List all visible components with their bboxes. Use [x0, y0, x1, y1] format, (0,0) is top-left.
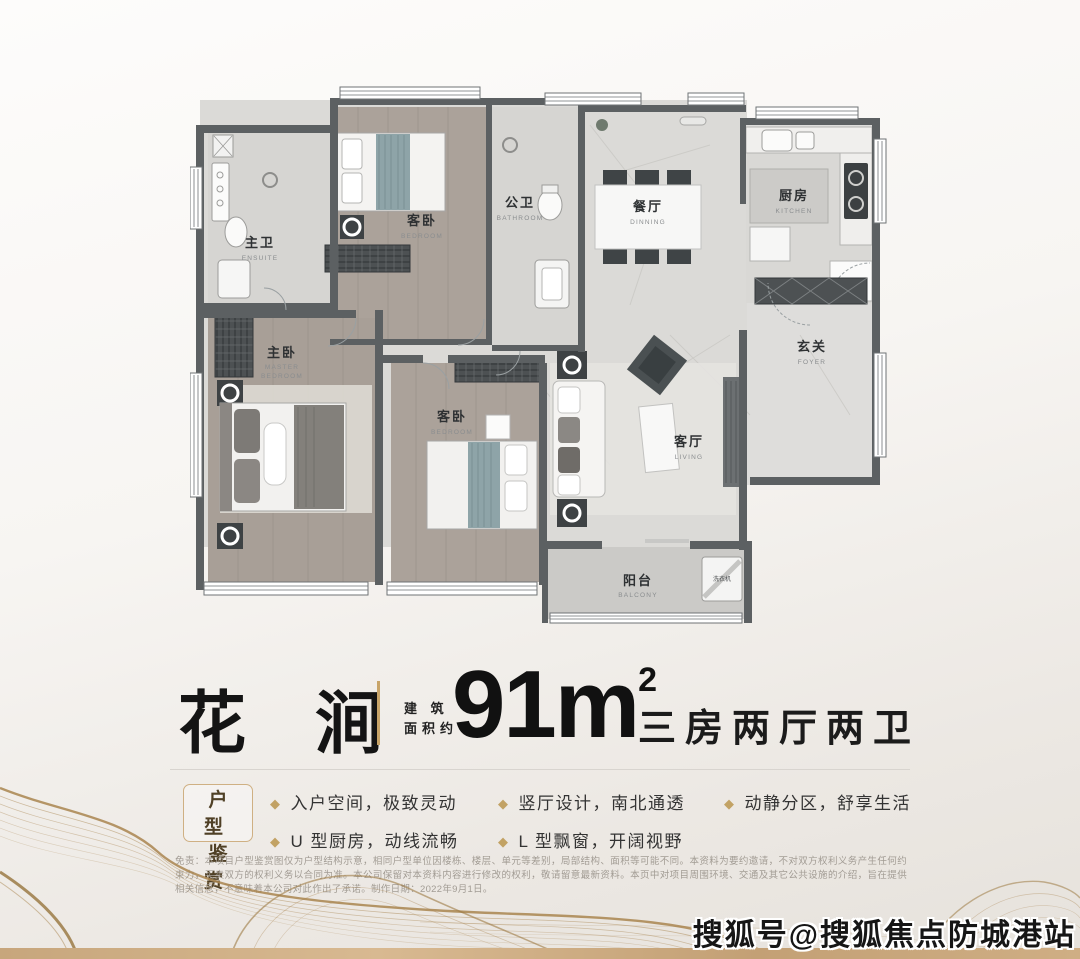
svg-text:ENSUITE: ENSUITE	[242, 255, 279, 262]
svg-text:客卧: 客卧	[407, 213, 437, 228]
foyer-cabinet	[755, 278, 867, 304]
svg-text:FOYER: FOYER	[798, 359, 826, 366]
room-label-bedroom-top: 客卧 BEDROOM	[401, 213, 443, 240]
area-prefix-line2: 面积约	[404, 719, 458, 739]
area-prefix-line1: 建 筑	[404, 699, 458, 719]
svg-text:阳台: 阳台	[623, 573, 653, 588]
svg-text:BALCONY: BALCONY	[618, 592, 657, 599]
svg-text:DINNING: DINNING	[630, 219, 666, 226]
svg-text:主卫: 主卫	[245, 235, 275, 250]
room-label-foyer: 玄关 FOYER	[797, 339, 827, 366]
area-superscript: 2	[638, 661, 657, 699]
svg-text:BEDROOM: BEDROOM	[401, 233, 443, 240]
area-value: 91m2	[452, 650, 657, 760]
room-label-balcony: 阳台 BALCONY	[618, 573, 657, 599]
gold-divider	[377, 681, 380, 745]
svg-text:餐厅: 餐厅	[632, 199, 663, 214]
room-label-ensuite: 主卫 ENSUITE	[242, 235, 279, 262]
room-label-bedroom-bottom: 客卧 BEDROOM	[431, 409, 473, 436]
svg-text:BATHROOM: BATHROOM	[497, 215, 544, 222]
layout-description: 三房两厅两卫	[638, 697, 920, 752]
area-number: 91m	[452, 651, 638, 758]
room-label-kitchen: 厨房 KITCHEN	[776, 188, 813, 215]
svg-text:玄关: 玄关	[797, 339, 827, 354]
svg-text:BEDROOM: BEDROOM	[261, 373, 303, 380]
floor-plan: 主卫 ENSUITE 客卧 BEDROOM 公卫 BATHROOM 餐厅 DIN…	[190, 85, 890, 645]
svg-text:BEDROOM: BEDROOM	[431, 429, 473, 436]
svg-text:LIVING: LIVING	[675, 454, 704, 461]
svg-text:厨房: 厨房	[779, 188, 809, 203]
watermark: 搜狐号@搜狐焦点防城港站	[693, 910, 1076, 954]
washer-label: 洗衣机	[713, 575, 731, 583]
svg-text:公卫: 公卫	[505, 195, 535, 210]
area-prefix: 建 筑 面积约	[404, 699, 458, 739]
svg-text:客厅: 客厅	[674, 434, 704, 449]
svg-text:MASTER: MASTER	[265, 364, 299, 371]
svg-text:客卧: 客卧	[437, 409, 467, 424]
plan-name: 花 涧	[178, 668, 409, 767]
room-label-dining: 餐厅 DINNING	[630, 199, 666, 226]
room-label-living: 客厅 LIVING	[674, 434, 704, 461]
svg-text:主卧: 主卧	[267, 345, 297, 360]
svg-text:KITCHEN: KITCHEN	[776, 208, 813, 215]
